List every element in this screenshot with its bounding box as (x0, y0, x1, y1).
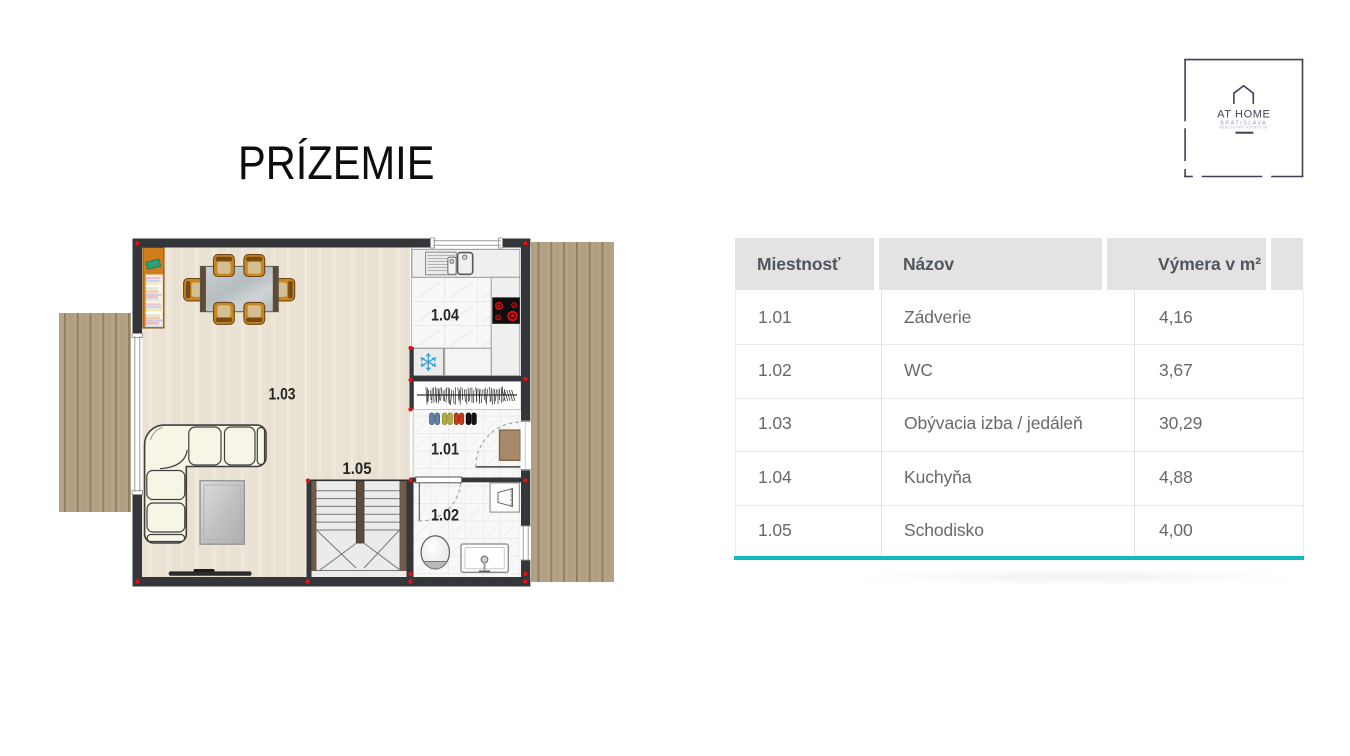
svg-text:1.02: 1.02 (431, 506, 459, 525)
svg-text:1.05: 1.05 (343, 459, 372, 478)
svg-text:AT HOME: AT HOME (1217, 109, 1270, 121)
svg-text:1.01: 1.01 (431, 440, 459, 459)
svg-text:1.04: 1.04 (431, 306, 459, 325)
svg-text:REAL ESTATE AGENCY SK: REAL ESTATE AGENCY SK (1219, 125, 1268, 129)
svg-text:1.03: 1.03 (269, 385, 296, 404)
